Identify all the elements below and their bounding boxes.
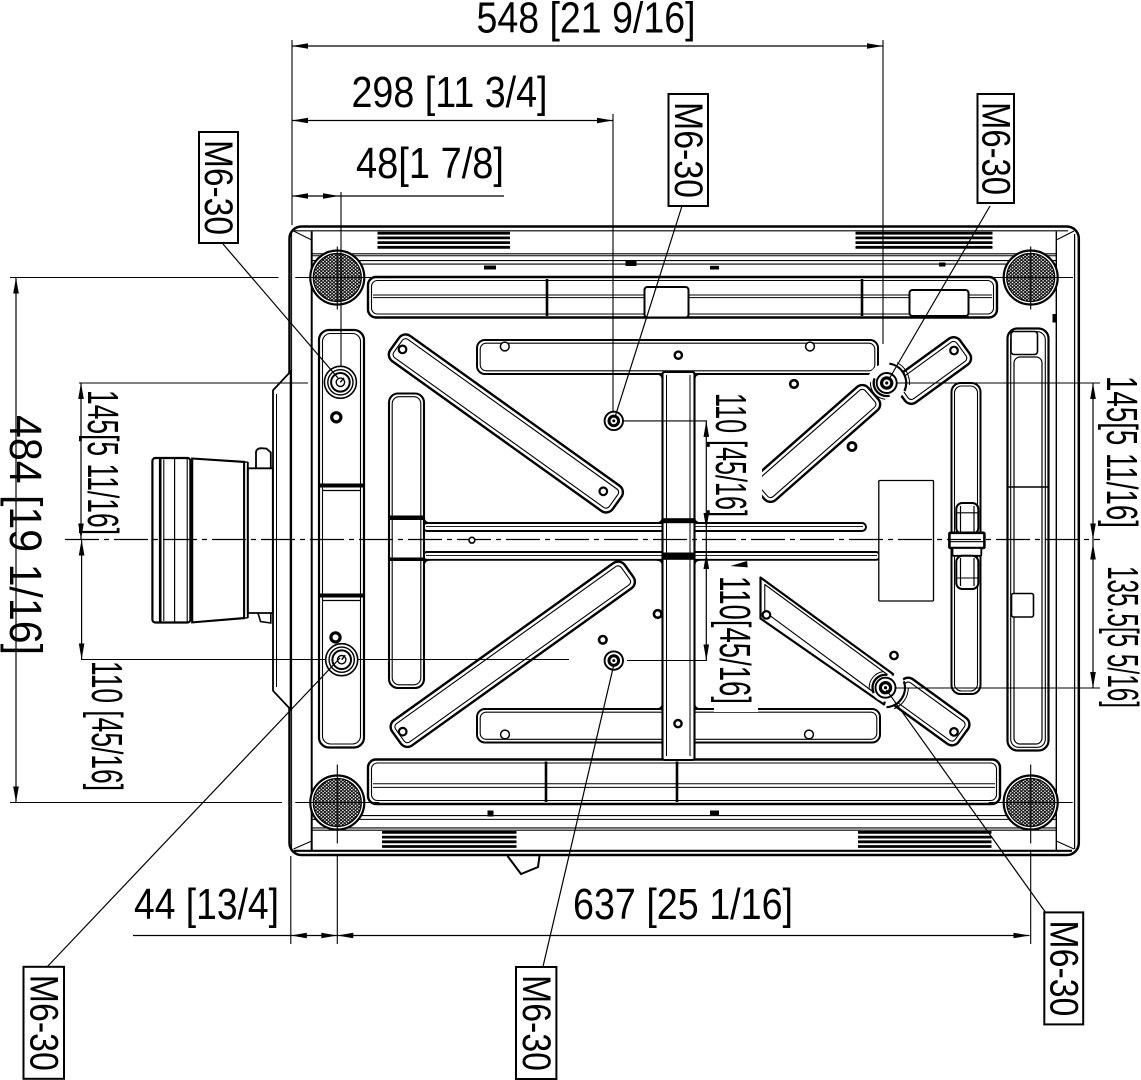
svg-text:548 [21 9/16]: 548 [21 9/16] xyxy=(477,0,696,43)
svg-text:484 [19 1/16]: 484 [19 1/16] xyxy=(0,415,51,655)
svg-text:M6-30: M6-30 xyxy=(514,975,558,1071)
svg-text:M6-30: M6-30 xyxy=(196,140,240,235)
svg-text:110 [45/16]: 110 [45/16] xyxy=(82,661,131,791)
svg-text:M6-30: M6-30 xyxy=(666,102,710,198)
svg-text:M6-30: M6-30 xyxy=(1041,920,1085,1016)
svg-text:298 [11 3/4]: 298 [11 3/4] xyxy=(352,68,548,117)
svg-text:110 [45/16]: 110 [45/16] xyxy=(706,393,755,517)
svg-text:637 [25 1/16]: 637 [25 1/16] xyxy=(573,880,793,929)
svg-text:145[5 11/16]: 145[5 11/16] xyxy=(1097,376,1141,528)
svg-text:110[45/16]: 110[45/16] xyxy=(710,576,759,704)
svg-text:44 [13/4]: 44 [13/4] xyxy=(134,880,279,929)
svg-text:M6-30: M6-30 xyxy=(21,975,65,1071)
svg-text:145[5 11/16]: 145[5 11/16] xyxy=(78,390,127,535)
svg-text:M6-30: M6-30 xyxy=(973,102,1017,195)
svg-text:135.5[5 5/16]: 135.5[5 5/16] xyxy=(1098,566,1141,708)
svg-text:48[1 7/8]: 48[1 7/8] xyxy=(356,139,504,188)
